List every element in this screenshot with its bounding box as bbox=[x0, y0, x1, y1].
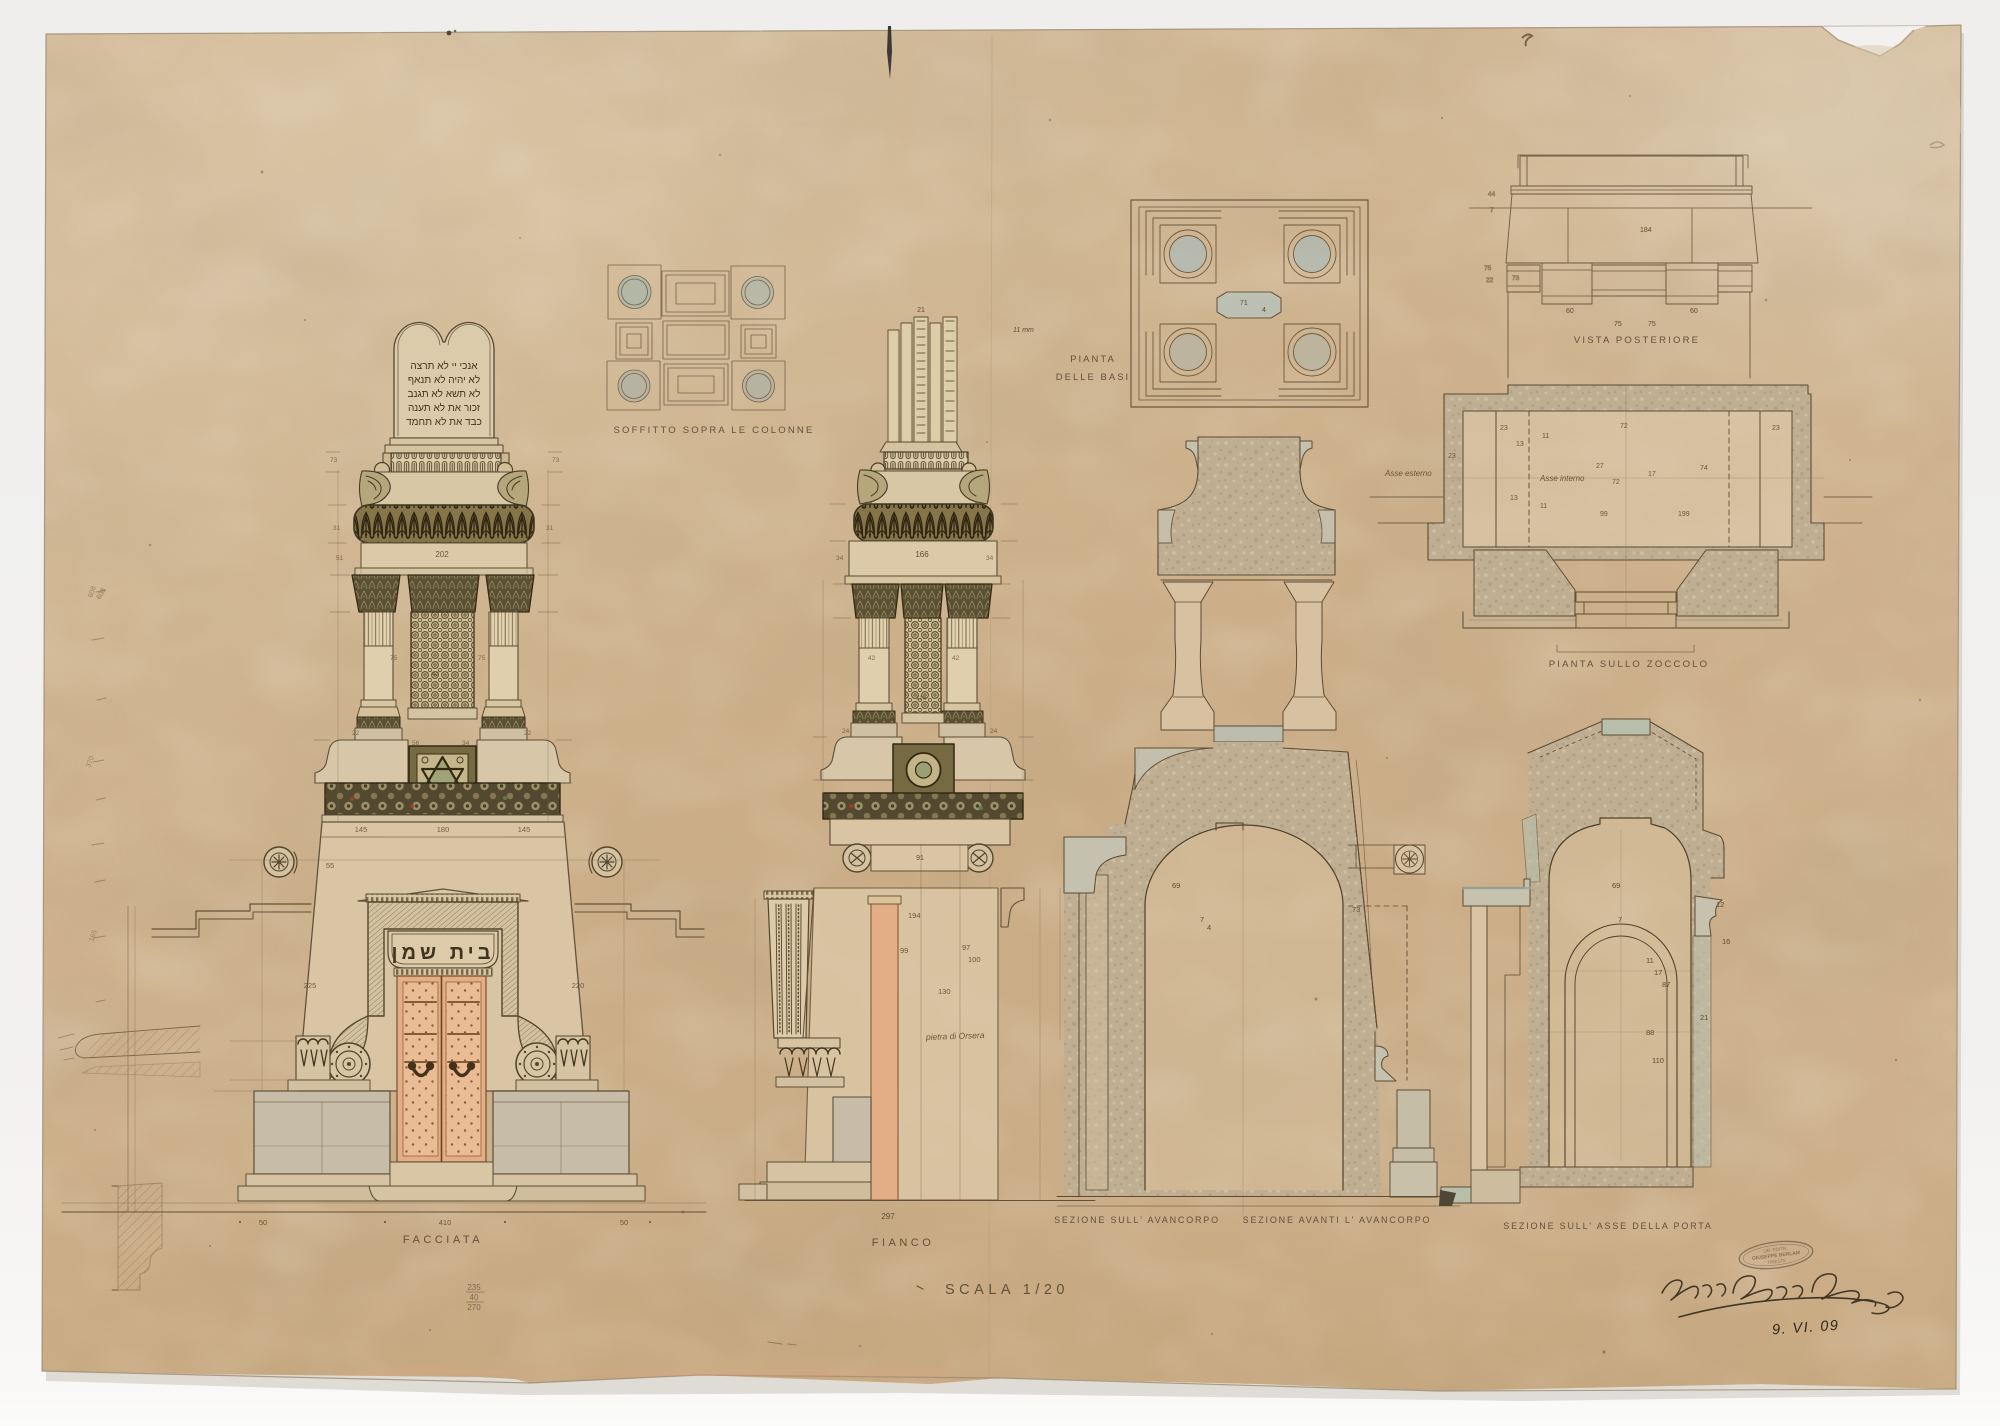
svg-text:27: 27 bbox=[1596, 463, 1604, 470]
svg-text:34: 34 bbox=[986, 555, 994, 562]
svg-text:לא יהיה לא תנאף: לא יהיה לא תנאף bbox=[408, 374, 480, 386]
svg-text:184: 184 bbox=[1640, 227, 1652, 234]
svg-text:34: 34 bbox=[836, 555, 844, 562]
svg-text:55: 55 bbox=[326, 861, 334, 870]
svg-text:34: 34 bbox=[462, 740, 470, 747]
svg-text:לא תשא לא תגנב: לא תשא לא תגנב bbox=[408, 388, 481, 400]
svg-text:69: 69 bbox=[1612, 881, 1620, 890]
svg-text:כבד את לא תחמד: כבד את לא תחמד bbox=[406, 416, 482, 428]
svg-text:Asse esterno: Asse esterno bbox=[1384, 469, 1432, 478]
svg-text:75: 75 bbox=[1648, 321, 1656, 328]
svg-text:7: 7 bbox=[1490, 207, 1494, 214]
svg-text:100: 100 bbox=[968, 955, 981, 964]
svg-text:40: 40 bbox=[470, 1293, 479, 1302]
svg-text:130: 130 bbox=[938, 987, 951, 996]
svg-text:60: 60 bbox=[1566, 308, 1574, 315]
svg-text:22: 22 bbox=[1486, 277, 1494, 284]
svg-text:13: 13 bbox=[1516, 441, 1524, 448]
svg-text:202: 202 bbox=[435, 550, 449, 559]
svg-text:97: 97 bbox=[962, 943, 970, 952]
svg-text:pietra di Orsera: pietra di Orsera bbox=[925, 1030, 985, 1042]
svg-text:PIANTA SULLO ZOCCOLO: PIANTA SULLO ZOCCOLO bbox=[1549, 659, 1710, 670]
svg-text:42: 42 bbox=[868, 655, 876, 662]
svg-text:73: 73 bbox=[330, 457, 338, 464]
svg-text:69: 69 bbox=[1172, 881, 1180, 890]
svg-text:אנכי יי לא תרצה: אנכי יי לא תרצה bbox=[410, 360, 478, 372]
svg-text:16: 16 bbox=[1722, 937, 1730, 946]
svg-text:75: 75 bbox=[478, 655, 486, 662]
svg-text:166: 166 bbox=[915, 550, 929, 559]
svg-text:17: 17 bbox=[1648, 471, 1656, 478]
svg-text:42: 42 bbox=[952, 655, 960, 662]
svg-text:PIANTA: PIANTA bbox=[1070, 354, 1116, 365]
svg-text:22: 22 bbox=[524, 730, 532, 737]
svg-text:24: 24 bbox=[842, 728, 850, 735]
svg-text:73: 73 bbox=[1352, 905, 1360, 914]
svg-text:110: 110 bbox=[1652, 1056, 1664, 1065]
svg-text:88: 88 bbox=[1646, 1028, 1654, 1037]
svg-text:FACCIATA: FACCIATA bbox=[403, 1234, 483, 1246]
svg-text:SEZIONE AVANTI L' AVANCORPO: SEZIONE AVANTI L' AVANCORPO bbox=[1243, 1215, 1432, 1225]
svg-text:31: 31 bbox=[333, 525, 341, 532]
svg-text:21: 21 bbox=[917, 307, 925, 314]
svg-text:270: 270 bbox=[467, 1303, 481, 1312]
svg-text:60: 60 bbox=[1690, 308, 1698, 315]
svg-text:50: 50 bbox=[259, 1218, 267, 1227]
svg-text:220: 220 bbox=[572, 981, 585, 990]
svg-text:87: 87 bbox=[1662, 980, 1670, 989]
svg-text:75: 75 bbox=[1614, 321, 1622, 328]
svg-text:99: 99 bbox=[900, 946, 908, 955]
svg-text:199: 199 bbox=[1678, 511, 1690, 518]
svg-text:72: 72 bbox=[1620, 423, 1628, 430]
svg-text:17: 17 bbox=[1654, 968, 1662, 977]
svg-text:7: 7 bbox=[1200, 915, 1204, 924]
svg-text:91: 91 bbox=[916, 855, 924, 862]
svg-text:22: 22 bbox=[352, 730, 360, 737]
svg-text:23: 23 bbox=[1448, 453, 1456, 460]
svg-text:145: 145 bbox=[355, 825, 368, 834]
svg-text:11: 11 bbox=[1646, 956, 1654, 965]
svg-text:31: 31 bbox=[546, 525, 554, 532]
svg-text:50: 50 bbox=[620, 1218, 628, 1227]
svg-text:11: 11 bbox=[371, 603, 378, 610]
svg-text:SCALA 1/20: SCALA 1/20 bbox=[945, 1282, 1069, 1298]
svg-text:7: 7 bbox=[1618, 915, 1622, 924]
svg-text:23: 23 bbox=[1500, 425, 1508, 432]
svg-text:99: 99 bbox=[1600, 511, 1608, 518]
svg-text:75: 75 bbox=[390, 655, 398, 662]
svg-text:235: 235 bbox=[467, 1283, 481, 1292]
svg-text:SOFFITTO SOPRA LE COLONNE: SOFFITTO SOPRA LE COLONNE bbox=[613, 425, 814, 436]
svg-text:SEZIONE SULL' AVANCORPO: SEZIONE SULL' AVANCORPO bbox=[1054, 1215, 1220, 1225]
svg-text:73: 73 bbox=[1512, 275, 1520, 282]
svg-text:11 mm: 11 mm bbox=[1013, 327, 1034, 334]
svg-text:44: 44 bbox=[1488, 191, 1496, 198]
svg-text:VISTA POSTERIORE: VISTA POSTERIORE bbox=[1574, 335, 1700, 346]
svg-text:410: 410 bbox=[439, 1218, 452, 1227]
svg-text:74: 74 bbox=[1700, 465, 1708, 472]
svg-text:72: 72 bbox=[1612, 479, 1620, 486]
svg-text:24: 24 bbox=[990, 728, 998, 735]
svg-text:297: 297 bbox=[881, 1212, 895, 1221]
svg-text:42: 42 bbox=[432, 671, 440, 678]
svg-text:116: 116 bbox=[916, 695, 927, 702]
svg-text:23: 23 bbox=[1772, 425, 1780, 432]
svg-text:11: 11 bbox=[1542, 433, 1549, 440]
svg-text:11: 11 bbox=[1540, 503, 1547, 510]
svg-text:73: 73 bbox=[552, 457, 560, 464]
svg-text:225: 225 bbox=[304, 981, 317, 990]
svg-text:4: 4 bbox=[1262, 307, 1266, 314]
svg-text:FIANCO: FIANCO bbox=[872, 1237, 935, 1249]
svg-text:51: 51 bbox=[336, 555, 344, 562]
svg-text:SEZIONE SULL' ASSE DELLA PORTA: SEZIONE SULL' ASSE DELLA PORTA bbox=[1503, 1221, 1712, 1231]
svg-text:180: 180 bbox=[437, 825, 450, 834]
svg-text:11: 11 bbox=[506, 603, 513, 610]
svg-text:DELLE BASI: DELLE BASI bbox=[1056, 372, 1130, 383]
svg-text:194: 194 bbox=[908, 911, 921, 920]
svg-text:13: 13 bbox=[1510, 495, 1518, 502]
svg-text:17: 17 bbox=[888, 603, 896, 610]
svg-text:בית שמן: בית שמן bbox=[391, 942, 494, 964]
svg-text:145: 145 bbox=[518, 825, 531, 834]
svg-text:זכור את לא תענה: זכור את לא תענה bbox=[408, 402, 481, 414]
svg-text:17: 17 bbox=[946, 603, 954, 610]
svg-text:71: 71 bbox=[1240, 300, 1248, 307]
svg-text:21: 21 bbox=[1700, 1013, 1708, 1022]
svg-text:12: 12 bbox=[1716, 900, 1724, 909]
svg-text:56: 56 bbox=[412, 740, 420, 747]
svg-text:75: 75 bbox=[1484, 265, 1492, 272]
svg-text:Asse interno: Asse interno bbox=[1539, 474, 1585, 483]
svg-text:4: 4 bbox=[1207, 923, 1211, 932]
